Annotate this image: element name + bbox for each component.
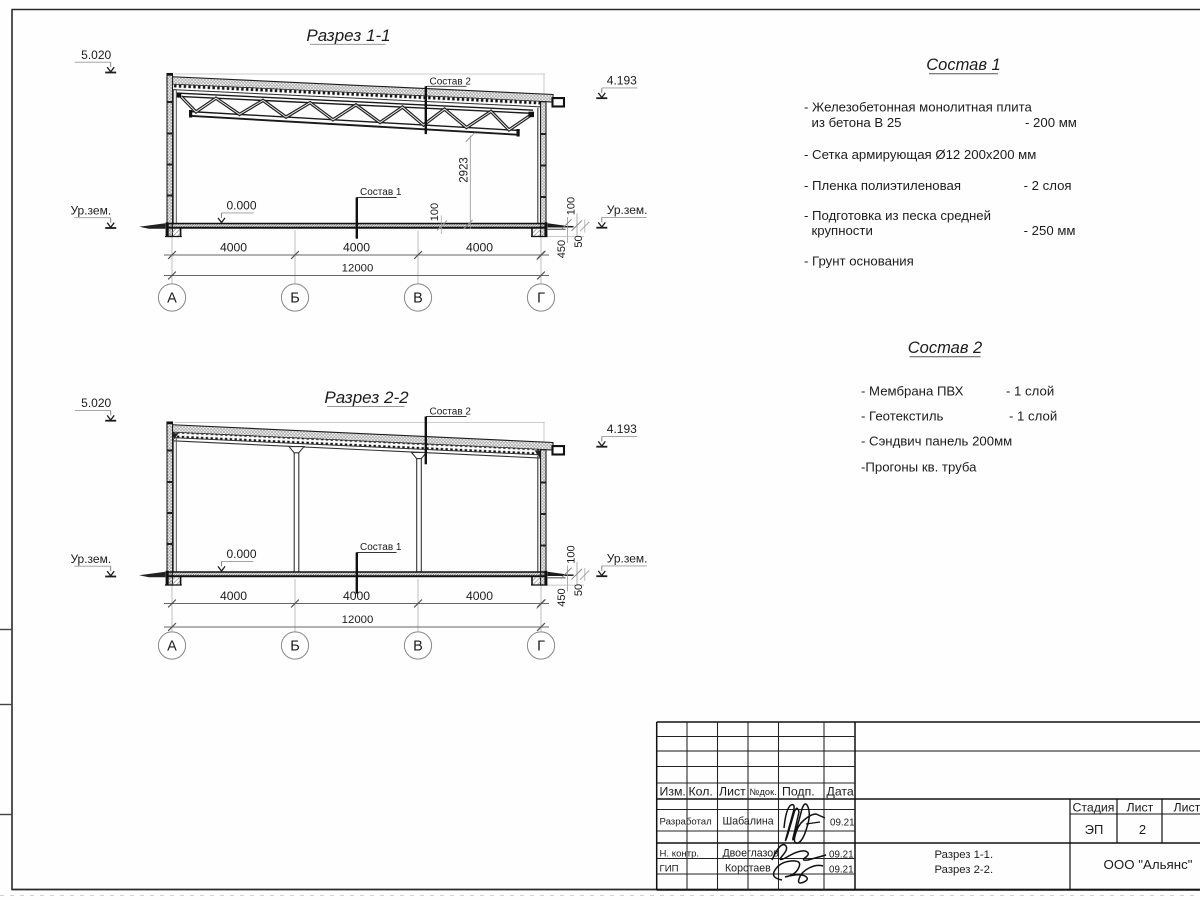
svg-text:Б: Б: [290, 639, 300, 655]
svg-text:2: 2: [1139, 822, 1146, 837]
svg-text:Состав 2: Состав 2: [430, 76, 472, 87]
svg-text:- Подготовка из песка средней: - Подготовка из песка средней: [804, 208, 991, 223]
svg-text:4.193: 4.193: [607, 422, 637, 436]
svg-text:ЭП: ЭП: [1085, 822, 1104, 837]
svg-text:4.193: 4.193: [607, 74, 637, 88]
svg-text:- 200 мм: - 200 мм: [1025, 115, 1077, 130]
svg-text:Лист: Лист: [719, 785, 746, 799]
svg-text:Шабалина: Шабалина: [723, 816, 774, 828]
svg-text:Состав 2: Состав 2: [430, 407, 472, 418]
svg-text:0.000: 0.000: [227, 199, 257, 213]
svg-text:- 1 слой: - 1 слой: [1006, 384, 1054, 399]
svg-text:Разрез 1-1: Разрез 1-1: [306, 26, 390, 45]
svg-text:№док.: №док.: [750, 787, 777, 797]
svg-text:5.020: 5.020: [81, 48, 111, 62]
svg-text:ГИП: ГИП: [660, 864, 679, 875]
svg-text:Б: Б: [290, 291, 300, 307]
svg-text:4000: 4000: [343, 241, 370, 255]
svg-text:Коротаев: Коротаев: [725, 863, 771, 875]
svg-text:крупности: крупности: [812, 223, 873, 238]
svg-text:В: В: [413, 639, 423, 655]
svg-text:Ур.зем.: Ур.зем.: [70, 552, 111, 566]
svg-text:- Геотекстиль: - Геотекстиль: [861, 409, 944, 424]
svg-text:- Железобетонная монолитная п: - Железобетонная монолитная плита: [804, 100, 1033, 115]
svg-text:Лист: Лист: [1127, 801, 1154, 815]
svg-text:ООО "Альянс": ООО "Альянс": [1104, 857, 1193, 872]
svg-text:Кол.: Кол.: [689, 785, 713, 799]
svg-text:450: 450: [556, 240, 568, 258]
svg-text:Н. контр.: Н. контр.: [660, 849, 700, 860]
svg-text:В: В: [413, 291, 423, 307]
svg-text:100: 100: [566, 197, 578, 215]
svg-text:Изм.: Изм.: [660, 785, 686, 799]
svg-text:Состав 1: Состав 1: [926, 56, 1000, 74]
svg-text:- Грунт основания: - Грунт основания: [804, 254, 914, 269]
svg-text:5.020: 5.020: [81, 396, 111, 410]
svg-text:50: 50: [573, 584, 585, 596]
svg-text:100: 100: [429, 203, 441, 221]
svg-text:Разработал: Разработал: [660, 817, 712, 828]
svg-text:4000: 4000: [220, 589, 247, 603]
svg-text:Стадия: Стадия: [1073, 801, 1115, 815]
svg-text:- Сетка армирующая Ø12 200х200: - Сетка армирующая Ø12 200х200 мм: [804, 147, 1036, 162]
svg-text:из бетона В 25: из бетона В 25: [812, 115, 902, 130]
svg-text:А: А: [167, 291, 177, 307]
svg-text:- Мембрана ПВХ: - Мембрана ПВХ: [861, 384, 964, 399]
svg-text:Ур.зем.: Ур.зем.: [607, 552, 648, 566]
svg-text:09.21: 09.21: [829, 850, 854, 861]
svg-text:2923: 2923: [459, 157, 471, 183]
svg-text:- 250 мм: - 250 мм: [1024, 223, 1076, 238]
svg-text:А: А: [167, 639, 177, 655]
svg-text:Дата: Дата: [827, 785, 854, 799]
svg-text:12000: 12000: [342, 263, 374, 275]
svg-text:Разрез 1-1.: Разрез 1-1.: [935, 849, 994, 861]
svg-text:-Прогоны кв. труба: -Прогоны кв. труба: [861, 460, 977, 475]
svg-text:09.21: 09.21: [829, 865, 854, 876]
svg-text:100: 100: [566, 545, 578, 563]
svg-text:4000: 4000: [466, 241, 493, 255]
svg-text:Состав 1: Состав 1: [360, 542, 402, 553]
svg-text:Листов: Листов: [1174, 801, 1200, 815]
svg-text:Ур.зем.: Ур.зем.: [607, 203, 648, 217]
svg-text:4000: 4000: [220, 241, 247, 255]
svg-text:- 2 слоя: - 2 слоя: [1024, 178, 1072, 193]
svg-text:12000: 12000: [342, 614, 374, 626]
svg-text:Г: Г: [537, 291, 545, 307]
svg-text:Состав 1: Состав 1: [360, 187, 402, 198]
svg-text:Разрез 2-2.: Разрез 2-2.: [935, 864, 994, 876]
svg-text:- 1 слой: - 1 слой: [1009, 409, 1057, 424]
svg-text:Г: Г: [537, 639, 545, 655]
svg-text:0.000: 0.000: [227, 547, 257, 561]
svg-text:Ур.зем.: Ур.зем.: [70, 203, 111, 217]
svg-text:09.21: 09.21: [830, 818, 855, 829]
svg-text:50: 50: [573, 235, 585, 247]
svg-text:450: 450: [556, 588, 568, 606]
svg-text:4000: 4000: [466, 589, 493, 603]
svg-text:Двоеглазов: Двоеглазов: [723, 848, 780, 860]
svg-text:Подп.: Подп.: [782, 785, 815, 799]
svg-text:Состав 2: Состав 2: [908, 339, 982, 357]
svg-text:- Пленка полиэтиленовая: - Пленка полиэтиленовая: [804, 178, 961, 193]
svg-text:Разрез 2-2: Разрез 2-2: [324, 388, 409, 407]
svg-text:- Сэндвич панель 200мм: - Сэндвич панель 200мм: [861, 434, 1012, 449]
